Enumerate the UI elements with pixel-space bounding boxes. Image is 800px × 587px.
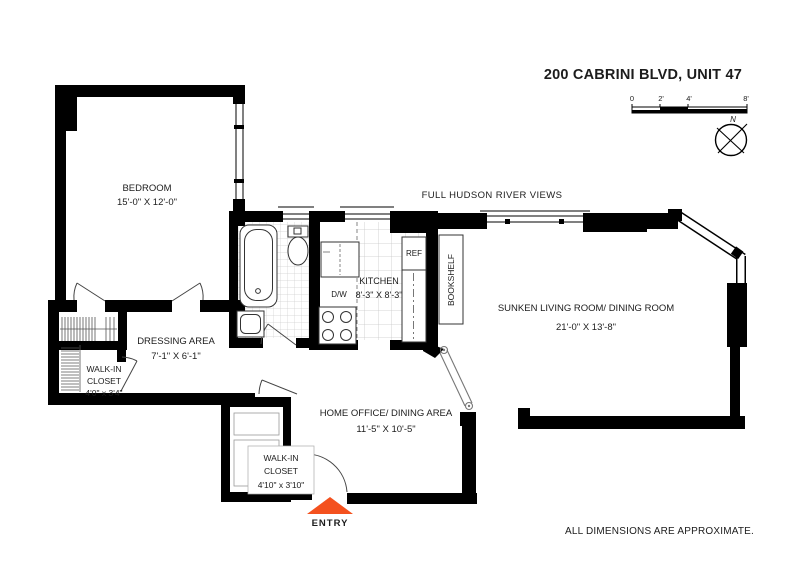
living-room-dims-label: 21'-0" X 13'-8" (556, 322, 616, 333)
scale-label-2ft: 2' (658, 94, 664, 103)
scale-bar: 0 2' 4' 8' (630, 94, 749, 113)
bedroom-door-right (172, 283, 203, 301)
plan-title: 200 CABRINI BLVD, UNIT 47 (544, 67, 742, 83)
walk-in-closet-left-name2: CLOSET (87, 376, 121, 386)
bedroom-dims-label: 15'-0" X 12'-0" (117, 197, 177, 208)
home-office-name-label: HOME OFFICE/ DINING AREA (320, 408, 453, 419)
dressing-area-name-label: DRESSING AREA (137, 336, 215, 347)
bedroom-door-left (74, 283, 105, 301)
walk-in-closet-entry-dims: 4'10" x 3'10" (258, 480, 305, 490)
compass-rose: N (716, 115, 748, 156)
walk-in-closet-entry-name1: WALK-IN (263, 453, 298, 463)
sunken-step-railing (440, 347, 473, 410)
sink-fixture (237, 311, 264, 337)
kitchen-window (340, 207, 394, 222)
compass-north-label: N (730, 115, 736, 124)
dishwasher-label: D/W (331, 290, 347, 299)
living-room-name-label: SUNKEN LIVING ROOM/ DINING ROOM (498, 303, 674, 314)
home-office-dims-label: 11'-5" X 10'-5" (356, 424, 415, 435)
kitchen-name-label: KITCHEN (359, 276, 399, 286)
bathroom-window (278, 207, 314, 222)
toilet-fixture (288, 226, 308, 265)
floor-plan-canvas: ENTRY 0 2' 4' 8' N 200 CABRINI BLVD, UNI… (0, 0, 800, 587)
dressing-area-door (259, 380, 297, 394)
floorplan-page: ENTRY 0 2' 4' 8' N 200 CABRINI BLVD, UNI… (0, 0, 800, 587)
entry-arrow (307, 497, 353, 514)
bathtub-fixture (240, 225, 277, 307)
entry-label: ENTRY (312, 518, 349, 529)
kitchen-counter-right (402, 270, 426, 342)
view-note-label: FULL HUDSON RIVER VIEWS (422, 190, 563, 201)
closet-hanging-rail-top (60, 317, 117, 341)
walk-in-closet-entry-name2: CLOSET (264, 466, 298, 476)
scale-label-0: 0 (630, 94, 634, 103)
dressing-area-dims-label: 7'-1" X 6'-1" (151, 351, 200, 362)
entry-marker: ENTRY (307, 497, 353, 529)
scale-label-8ft: 8' (743, 94, 749, 103)
disclaimer-label: ALL DIMENSIONS ARE APPROXIMATE. (565, 526, 754, 537)
scale-label-4ft: 4' (686, 94, 692, 103)
walk-in-closet-left-name1: WALK-IN (86, 364, 121, 374)
bay-window (672, 209, 747, 293)
walk-in-closet-left-dims: 4'0" x 3'4" (85, 388, 122, 398)
bookshelf-label: BOOKSHELF (446, 254, 456, 306)
walk-in-closet-left-hatch (61, 345, 80, 392)
kitchen-dims-label: 8'-3" X 8'-3" (356, 290, 403, 300)
living-room-window (480, 211, 590, 229)
kitchen-counter (321, 242, 359, 277)
walk-in-closet-left-door (121, 357, 137, 391)
bedroom-name-label: BEDROOM (122, 183, 171, 194)
bedroom-window (233, 101, 245, 201)
stove-fixture (319, 307, 356, 344)
refrigerator-label: REF (406, 249, 422, 258)
